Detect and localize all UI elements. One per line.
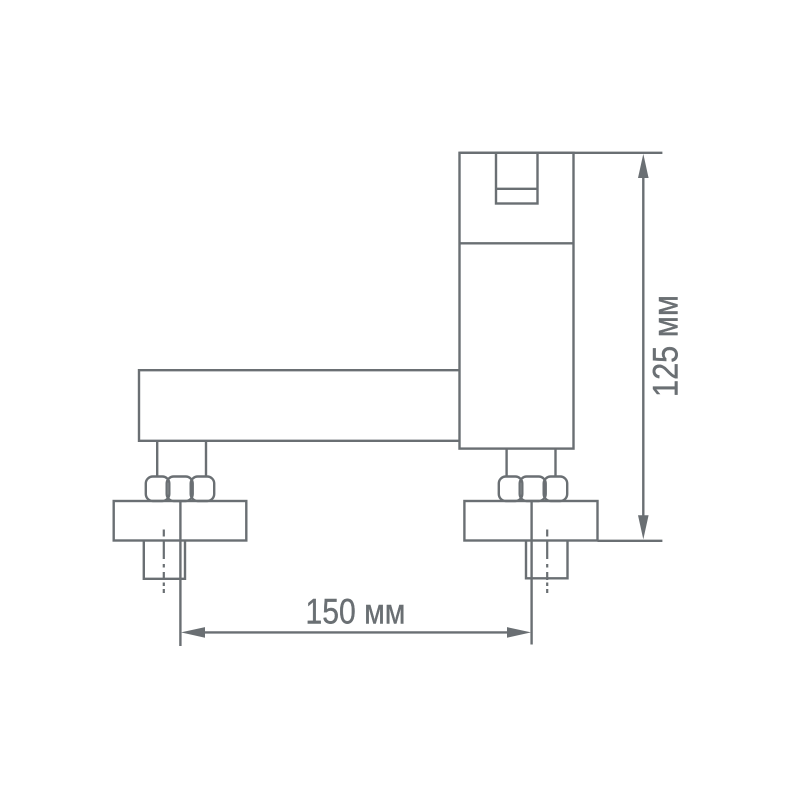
svg-text:125 мм: 125 мм <box>647 295 686 397</box>
svg-text:150 мм: 150 мм <box>306 593 406 632</box>
